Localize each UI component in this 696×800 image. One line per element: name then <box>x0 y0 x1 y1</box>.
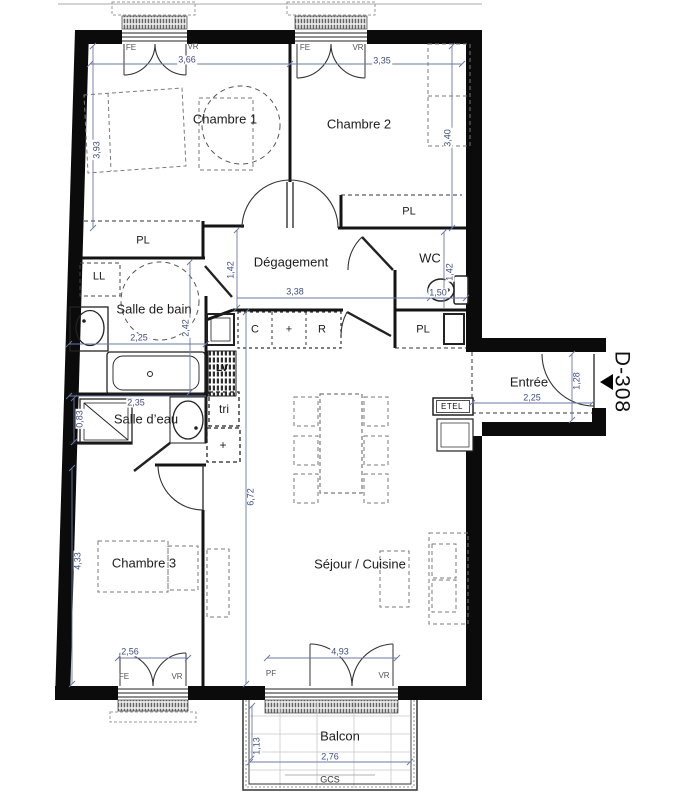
dim-ch1-width: 3,66 <box>177 56 197 65</box>
dim-balcon-depth: 1,13 <box>253 736 262 756</box>
room-label-entree: Entrée <box>510 376 548 389</box>
interior-walls <box>69 44 592 686</box>
etel-label: ETEL <box>441 403 463 411</box>
room-label-chambre3: Chambre 3 <box>112 557 176 570</box>
window3-fe-label: FE <box>119 673 129 681</box>
room-label-chambre1: Chambre 1 <box>193 113 257 126</box>
dim-degagement-width: 3,38 <box>285 288 305 297</box>
washer-label: LL <box>93 272 105 283</box>
dim-ch2-depth: 3,40 <box>444 128 453 148</box>
room-label-salle-de-bain: Salle de bain <box>116 303 191 316</box>
dim-sdb-width: 2,25 <box>129 334 149 343</box>
dim-ch3-width: 2,56 <box>120 648 140 657</box>
unit-id-label: D-308 <box>612 351 633 413</box>
dim-wc-width: 1,50 <box>428 289 448 298</box>
room-label-balcon: Balcon <box>320 730 360 743</box>
plus-box-label: + <box>219 439 226 451</box>
dim-sdb-depth: 2,42 <box>182 318 191 338</box>
window1-fe-label: FE <box>126 44 136 52</box>
dim-entree-depth: 1,28 <box>573 371 582 391</box>
dim-degagement-depth: 1,42 <box>227 260 236 280</box>
cooktop-label: C <box>251 325 259 336</box>
exterior-context <box>58 2 482 722</box>
room-label-sejour-cuisine: Séjour / Cuisine <box>314 558 406 571</box>
room-label-degagement: Dégagement <box>254 256 328 269</box>
gcs-label: GCS <box>320 776 340 785</box>
window2-fe-label: FE <box>300 44 310 52</box>
fridge-label: R <box>318 325 326 336</box>
recycling-label: tri <box>219 403 229 415</box>
dim-sejour-depth: 6,72 <box>247 487 256 507</box>
window3-vr-label: VR <box>171 673 182 681</box>
room-label-chambre2: Chambre 2 <box>327 118 391 131</box>
kitchen-plus-label: + <box>286 325 292 336</box>
closet-label-hall: PL <box>416 325 429 336</box>
closet-label-chambre1: PL <box>136 236 149 247</box>
window1-vr-label: VR <box>187 43 198 51</box>
dim-balcon-width: 2,76 <box>320 753 340 762</box>
dim-sde-width: 2,35 <box>126 399 146 408</box>
closet-label-chambre2: PL <box>402 207 415 218</box>
dishwasher-label: LV <box>216 364 228 374</box>
dim-entree-width: 2,25 <box>522 394 542 403</box>
room-label-wc: WC <box>419 252 441 265</box>
room-label-salle-deau: Salle d’eau <box>114 413 178 426</box>
window4-vr-label: VR <box>378 672 389 680</box>
dim-wc-depth: 1,42 <box>446 262 455 282</box>
window2-vr-label: VR <box>352 44 363 52</box>
dim-sde-depth: 0,83 <box>76 409 85 429</box>
window4-pf-label: PF <box>266 670 276 678</box>
dim-ch1-depth: 3,93 <box>93 140 102 160</box>
floor-plan: Chambre 1 Chambre 2 Chambre 3 Dégagement… <box>0 0 696 800</box>
dim-ch3-depth: 4,33 <box>74 551 83 571</box>
dim-sejour-width: 4,93 <box>330 648 350 657</box>
dim-ch2-width: 3,35 <box>372 57 392 66</box>
